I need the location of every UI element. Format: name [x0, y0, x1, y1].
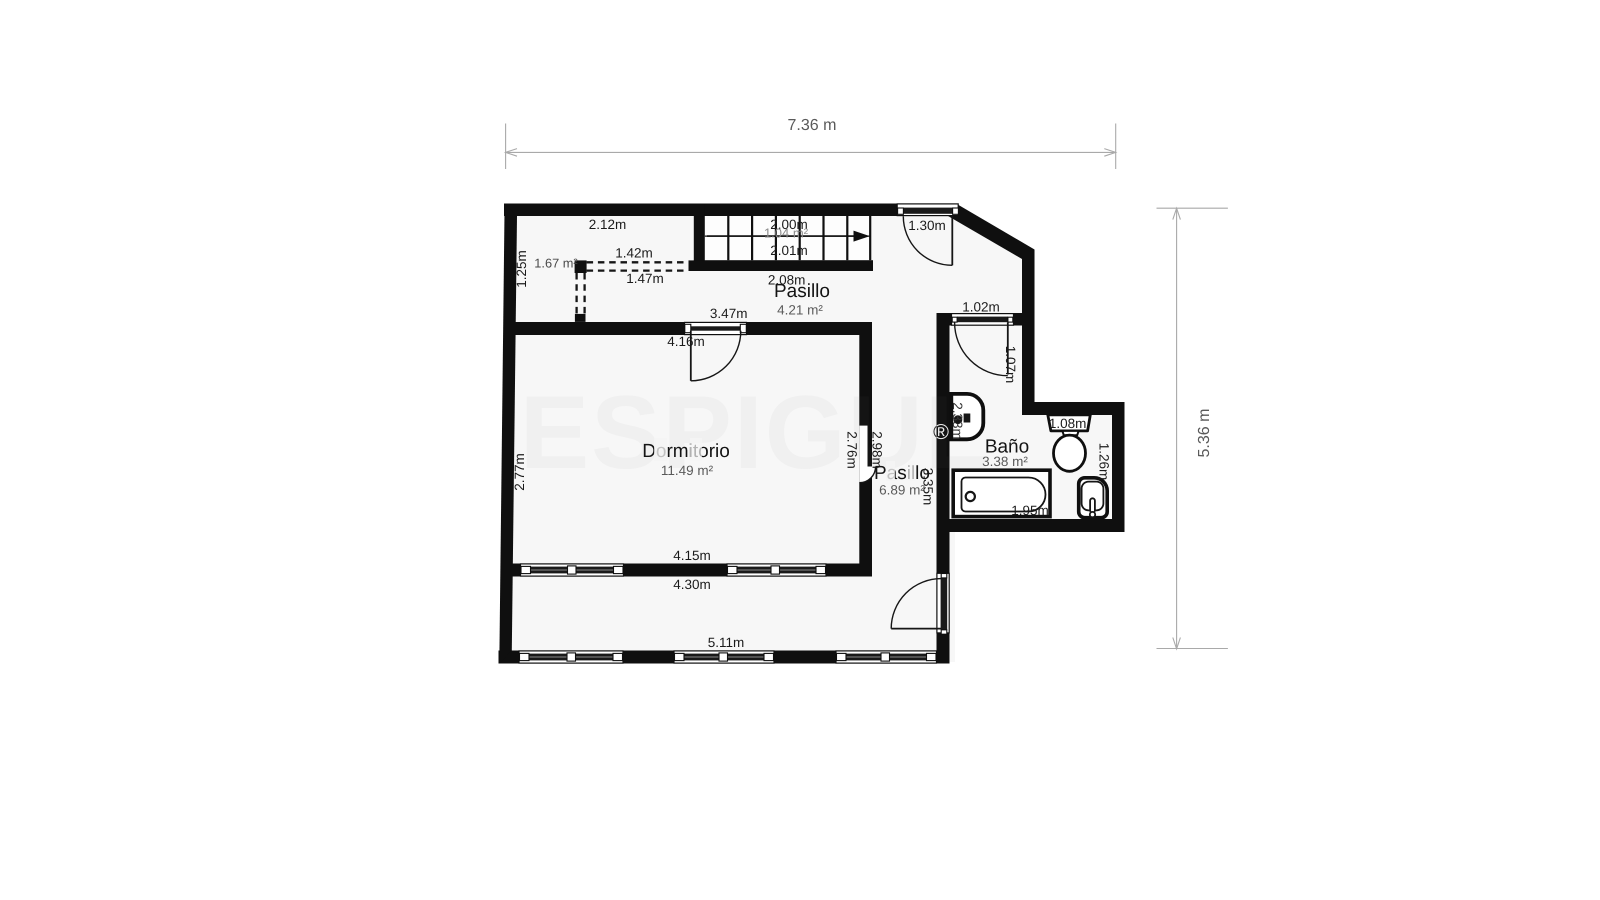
svg-text:1.42m: 1.42m	[615, 246, 653, 261]
svg-text:2.01m: 2.01m	[770, 243, 808, 258]
svg-text:1.47m: 1.47m	[626, 271, 664, 286]
svg-text:4.21 m²: 4.21 m²	[777, 303, 823, 318]
svg-text:1.07m: 1.07m	[1003, 346, 1018, 384]
svg-text:1.04 m²: 1.04 m²	[764, 225, 809, 240]
svg-text:1.08m: 1.08m	[1049, 416, 1087, 431]
svg-text:1.25m: 1.25m	[514, 250, 529, 288]
svg-text:1.67 m²: 1.67 m²	[534, 256, 578, 271]
svg-text:6.89 m²: 6.89 m²	[879, 483, 925, 498]
svg-text:2.77m: 2.77m	[512, 453, 527, 491]
svg-text:1.02m: 1.02m	[962, 300, 1000, 315]
svg-text:2.12m: 2.12m	[589, 217, 627, 232]
svg-text:7.36 m: 7.36 m	[788, 117, 837, 134]
svg-text:2.33m: 2.33m	[950, 402, 965, 440]
svg-text:2.98m: 2.98m	[870, 431, 885, 469]
svg-text:4.16m: 4.16m	[667, 334, 705, 349]
svg-text:11.49 m²: 11.49 m²	[661, 463, 714, 478]
svg-text:2.76m: 2.76m	[845, 431, 860, 469]
svg-text:3.35m: 3.35m	[920, 468, 935, 506]
svg-text:3.38 m²: 3.38 m²	[982, 454, 1028, 469]
svg-text:4.15m: 4.15m	[673, 548, 711, 563]
svg-text:1.95m: 1.95m	[1011, 503, 1049, 518]
svg-text:3.47m: 3.47m	[710, 306, 748, 321]
svg-text:2.08m: 2.08m	[768, 273, 806, 288]
svg-text:5.36 m: 5.36 m	[1196, 409, 1213, 458]
svg-text:1.30m: 1.30m	[908, 218, 946, 233]
svg-text:5.11m: 5.11m	[708, 635, 745, 650]
svg-text:4.30m: 4.30m	[673, 577, 711, 592]
svg-text:1.26m: 1.26m	[1097, 443, 1112, 481]
